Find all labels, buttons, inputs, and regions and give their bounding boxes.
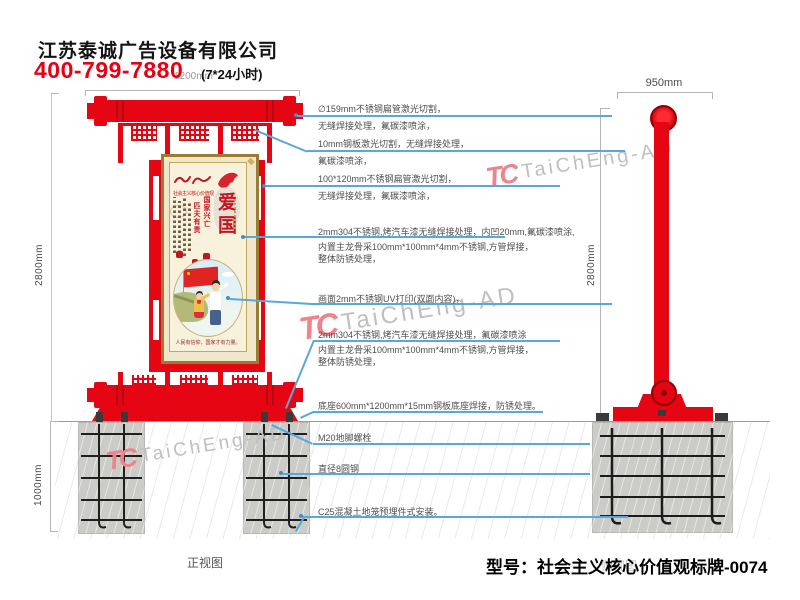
annotation-10-line-1: C25混凝土地笼预埋件式安装。 xyxy=(318,505,443,518)
post-slot xyxy=(153,300,159,340)
beam-ring xyxy=(272,385,274,405)
annotation-2-line-1: 10mm钢板激光切割，无缝焊接处理， xyxy=(318,137,469,150)
motto-col2: 匹夫有责 xyxy=(191,202,201,254)
taicheng-logo-icon: TC xyxy=(296,306,338,348)
side-pole xyxy=(654,122,669,390)
top-dim-bracket xyxy=(85,90,300,91)
beam-end-nub xyxy=(87,388,95,402)
anchor-bolt xyxy=(121,412,128,422)
beam-end-nub xyxy=(295,388,303,402)
bottom-lattice-band xyxy=(118,372,272,385)
side-width-dim: 950mm xyxy=(642,77,686,89)
beam-ring xyxy=(116,100,118,122)
watermark-text: TaiChEng-AD xyxy=(520,137,676,184)
lattice-rail xyxy=(218,372,223,385)
poster-artwork: 社会主义核心价值观 国家兴亡 匹夫有责 爱国 xyxy=(169,162,247,352)
dim-tick xyxy=(51,93,59,94)
lattice-ornament xyxy=(131,126,157,141)
calligraphy-strokes xyxy=(173,173,213,189)
leader-line-1 xyxy=(297,115,612,117)
man-body xyxy=(209,291,222,311)
girl-skirt xyxy=(194,312,204,318)
poster-motto: 国家兴亡 匹夫有责 xyxy=(191,196,211,254)
lattice-rail xyxy=(267,372,272,385)
foundation-dim-line xyxy=(50,421,51,532)
anchor-bolt xyxy=(96,412,103,422)
beam-end-cap xyxy=(94,96,107,126)
beam-end-nub xyxy=(87,103,95,119)
side-height-dim: 2800mm xyxy=(586,230,597,300)
clamp-foot xyxy=(715,413,728,421)
lattice-ornament xyxy=(180,375,208,385)
annotation-4-line-1: 2mm304不锈钢,烤汽车漆无缝焊接处理，内凹20mm,氟碳漆喷涂, xyxy=(318,225,575,238)
beam-ring xyxy=(122,100,124,122)
annotation-6-line-1: 2mm304不锈钢,烤汽车漆无缝焊接处理，氟碳漆喷涂 xyxy=(318,328,527,341)
lattice-rail xyxy=(267,123,272,163)
lattice-rail xyxy=(118,123,123,163)
text-column xyxy=(173,197,176,253)
lattice-ornament xyxy=(132,375,156,385)
front-height-dim-line xyxy=(51,93,52,421)
drawing-canvas: 1200mm 江苏泰诚广告设备有限公司 400-799-7880 (7*24小时… xyxy=(0,0,800,600)
annotation-7-line-1: 底座600mm*1200mm*15mm钢板底座焊接，防锈处理。 xyxy=(318,399,541,412)
taicheng-logo-icon: TC xyxy=(484,158,518,193)
annotation-2-line-2: 氟碳漆喷涂， xyxy=(318,154,372,167)
post-slot xyxy=(153,176,159,220)
beam-ring xyxy=(116,385,118,405)
text-column xyxy=(183,198,186,256)
service-hours: (7*24小时) xyxy=(201,64,262,83)
lattice-ornament xyxy=(179,126,209,141)
beam-ring xyxy=(122,385,124,405)
front-bottom-beam xyxy=(105,385,285,405)
top-dim-tick-right xyxy=(299,90,300,96)
annotation-3-line-1: 100*120mm不锈钢扁管激光切割， xyxy=(318,172,457,185)
model-number: 型号：社会主义核心价值观标牌-0074 xyxy=(486,553,767,578)
man-pants xyxy=(210,310,221,325)
beam-ring xyxy=(266,100,268,122)
seal-stamp xyxy=(176,251,183,258)
motto-col1: 国家兴亡 xyxy=(201,196,211,254)
side-pole-joint xyxy=(651,380,677,406)
phone-number: 400-799-7880 xyxy=(34,57,183,84)
annotation-3-line-2: 无缝焊接处理，氟碳漆喷涂， xyxy=(318,189,435,202)
front-footing-left xyxy=(78,422,145,534)
beam-ring xyxy=(272,100,274,122)
front-top-beam xyxy=(105,100,285,122)
text-column xyxy=(178,201,181,253)
beam-ring xyxy=(266,385,268,405)
gold-ornament xyxy=(247,158,255,166)
annotation-6-line-3: 整体防锈处理， xyxy=(318,355,381,368)
rebar-cage xyxy=(78,422,145,534)
gold-side-text xyxy=(234,199,236,229)
leader-line-3 xyxy=(266,185,560,187)
foundation-depth-dim: 1000mm xyxy=(33,450,44,520)
leader-line-2 xyxy=(307,150,625,152)
dim-tick xyxy=(617,92,618,99)
annotation-1-line-1: ∅159mm不锈钢扁管激光切割， xyxy=(318,102,446,115)
poster-caption: 人民有信仰，国家才有力量。 xyxy=(170,339,246,346)
cloud xyxy=(222,272,234,277)
front-height-dim: 2800mm xyxy=(34,230,45,300)
red-scarf xyxy=(197,300,201,304)
flag-star xyxy=(187,272,190,275)
lattice-rail xyxy=(118,372,123,385)
annotation-5-line-1: 画面2mm不锈钢UV打印(双面内容)， xyxy=(318,292,465,305)
center-bolt xyxy=(658,410,666,416)
dim-tick xyxy=(50,421,58,422)
dim-tick xyxy=(712,92,713,99)
poster-panel: 社会主义核心价值观 国家兴亡 匹夫有责 爱国 xyxy=(161,154,259,364)
front-view-label: 正视图 xyxy=(187,554,223,571)
annotation-4-line-3: 整体防锈处理， xyxy=(318,252,381,265)
anchor-bolt xyxy=(286,412,293,422)
clamp-foot xyxy=(596,413,609,421)
top-dim-tick-left xyxy=(85,90,86,96)
leader-diag-7 xyxy=(300,411,313,418)
side-width-bracket xyxy=(617,92,713,93)
annotation-9-line-1: 直径8圆钢 xyxy=(318,462,359,475)
dim-tick xyxy=(600,108,610,109)
anchor-bolt xyxy=(261,412,268,422)
dim-tick xyxy=(50,531,58,532)
taicheng-logo-icon: TC xyxy=(104,442,137,477)
annotation-8-line-1: M20地脚螺栓 xyxy=(318,431,372,444)
lattice-ornament xyxy=(232,375,258,385)
lattice-rail xyxy=(165,372,170,385)
annotation-1-line-2: 无缝焊接处理，氟碳漆喷涂， xyxy=(318,119,435,132)
